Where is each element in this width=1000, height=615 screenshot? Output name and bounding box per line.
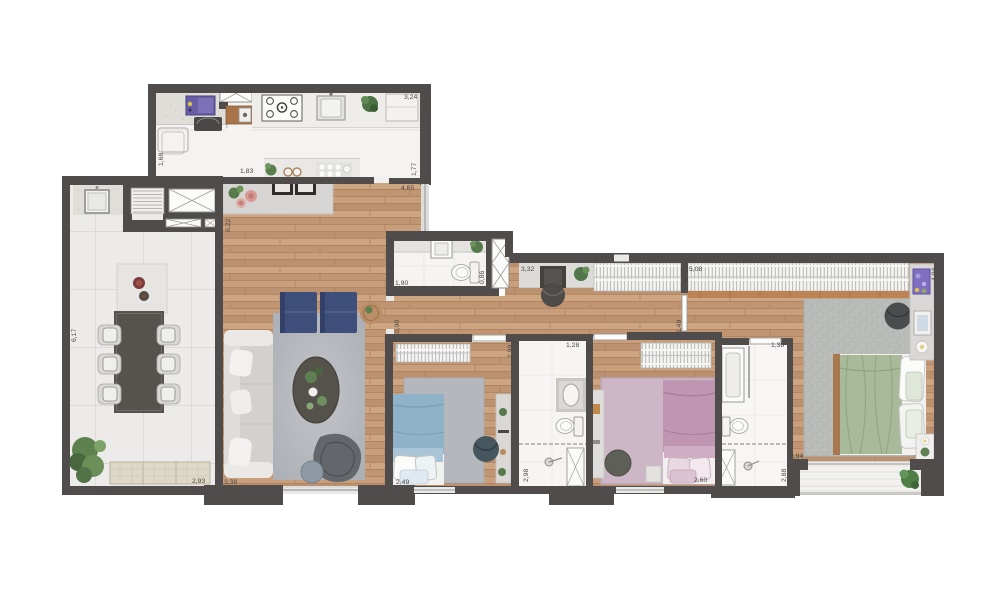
svg-text:2,99: 2,99: [507, 345, 514, 358]
svg-text:1,38: 1,38: [771, 342, 784, 349]
svg-text:0,90: 0,90: [394, 320, 401, 333]
svg-text:1,68: 1,68: [158, 153, 165, 166]
svg-text:0,86: 0,86: [479, 271, 486, 284]
svg-text:2,99: 2,99: [587, 345, 594, 358]
svg-text:2,98: 2,98: [523, 469, 530, 482]
svg-text:1,28: 1,28: [566, 342, 579, 349]
svg-text:3,38: 3,38: [224, 479, 237, 486]
svg-text:1,49: 1,49: [676, 320, 683, 333]
svg-text:2,94: 2,94: [790, 453, 803, 460]
svg-text:4,65: 4,65: [401, 185, 414, 192]
svg-text:2,49: 2,49: [396, 479, 409, 486]
svg-text:6,17: 6,17: [71, 329, 78, 342]
svg-text:5,08: 5,08: [689, 266, 702, 273]
svg-text:2,93: 2,93: [192, 478, 205, 485]
svg-text:1,90: 1,90: [395, 280, 408, 287]
svg-text:2,88: 2,88: [781, 469, 788, 482]
svg-text:4,04: 4,04: [931, 268, 938, 281]
svg-text:1,83: 1,83: [240, 168, 253, 175]
svg-text:3,24: 3,24: [404, 94, 417, 101]
svg-text:6,22: 6,22: [225, 219, 232, 232]
svg-text:3,32: 3,32: [521, 266, 534, 273]
svg-text:1,77: 1,77: [411, 163, 418, 176]
svg-text:2,60: 2,60: [694, 477, 707, 484]
